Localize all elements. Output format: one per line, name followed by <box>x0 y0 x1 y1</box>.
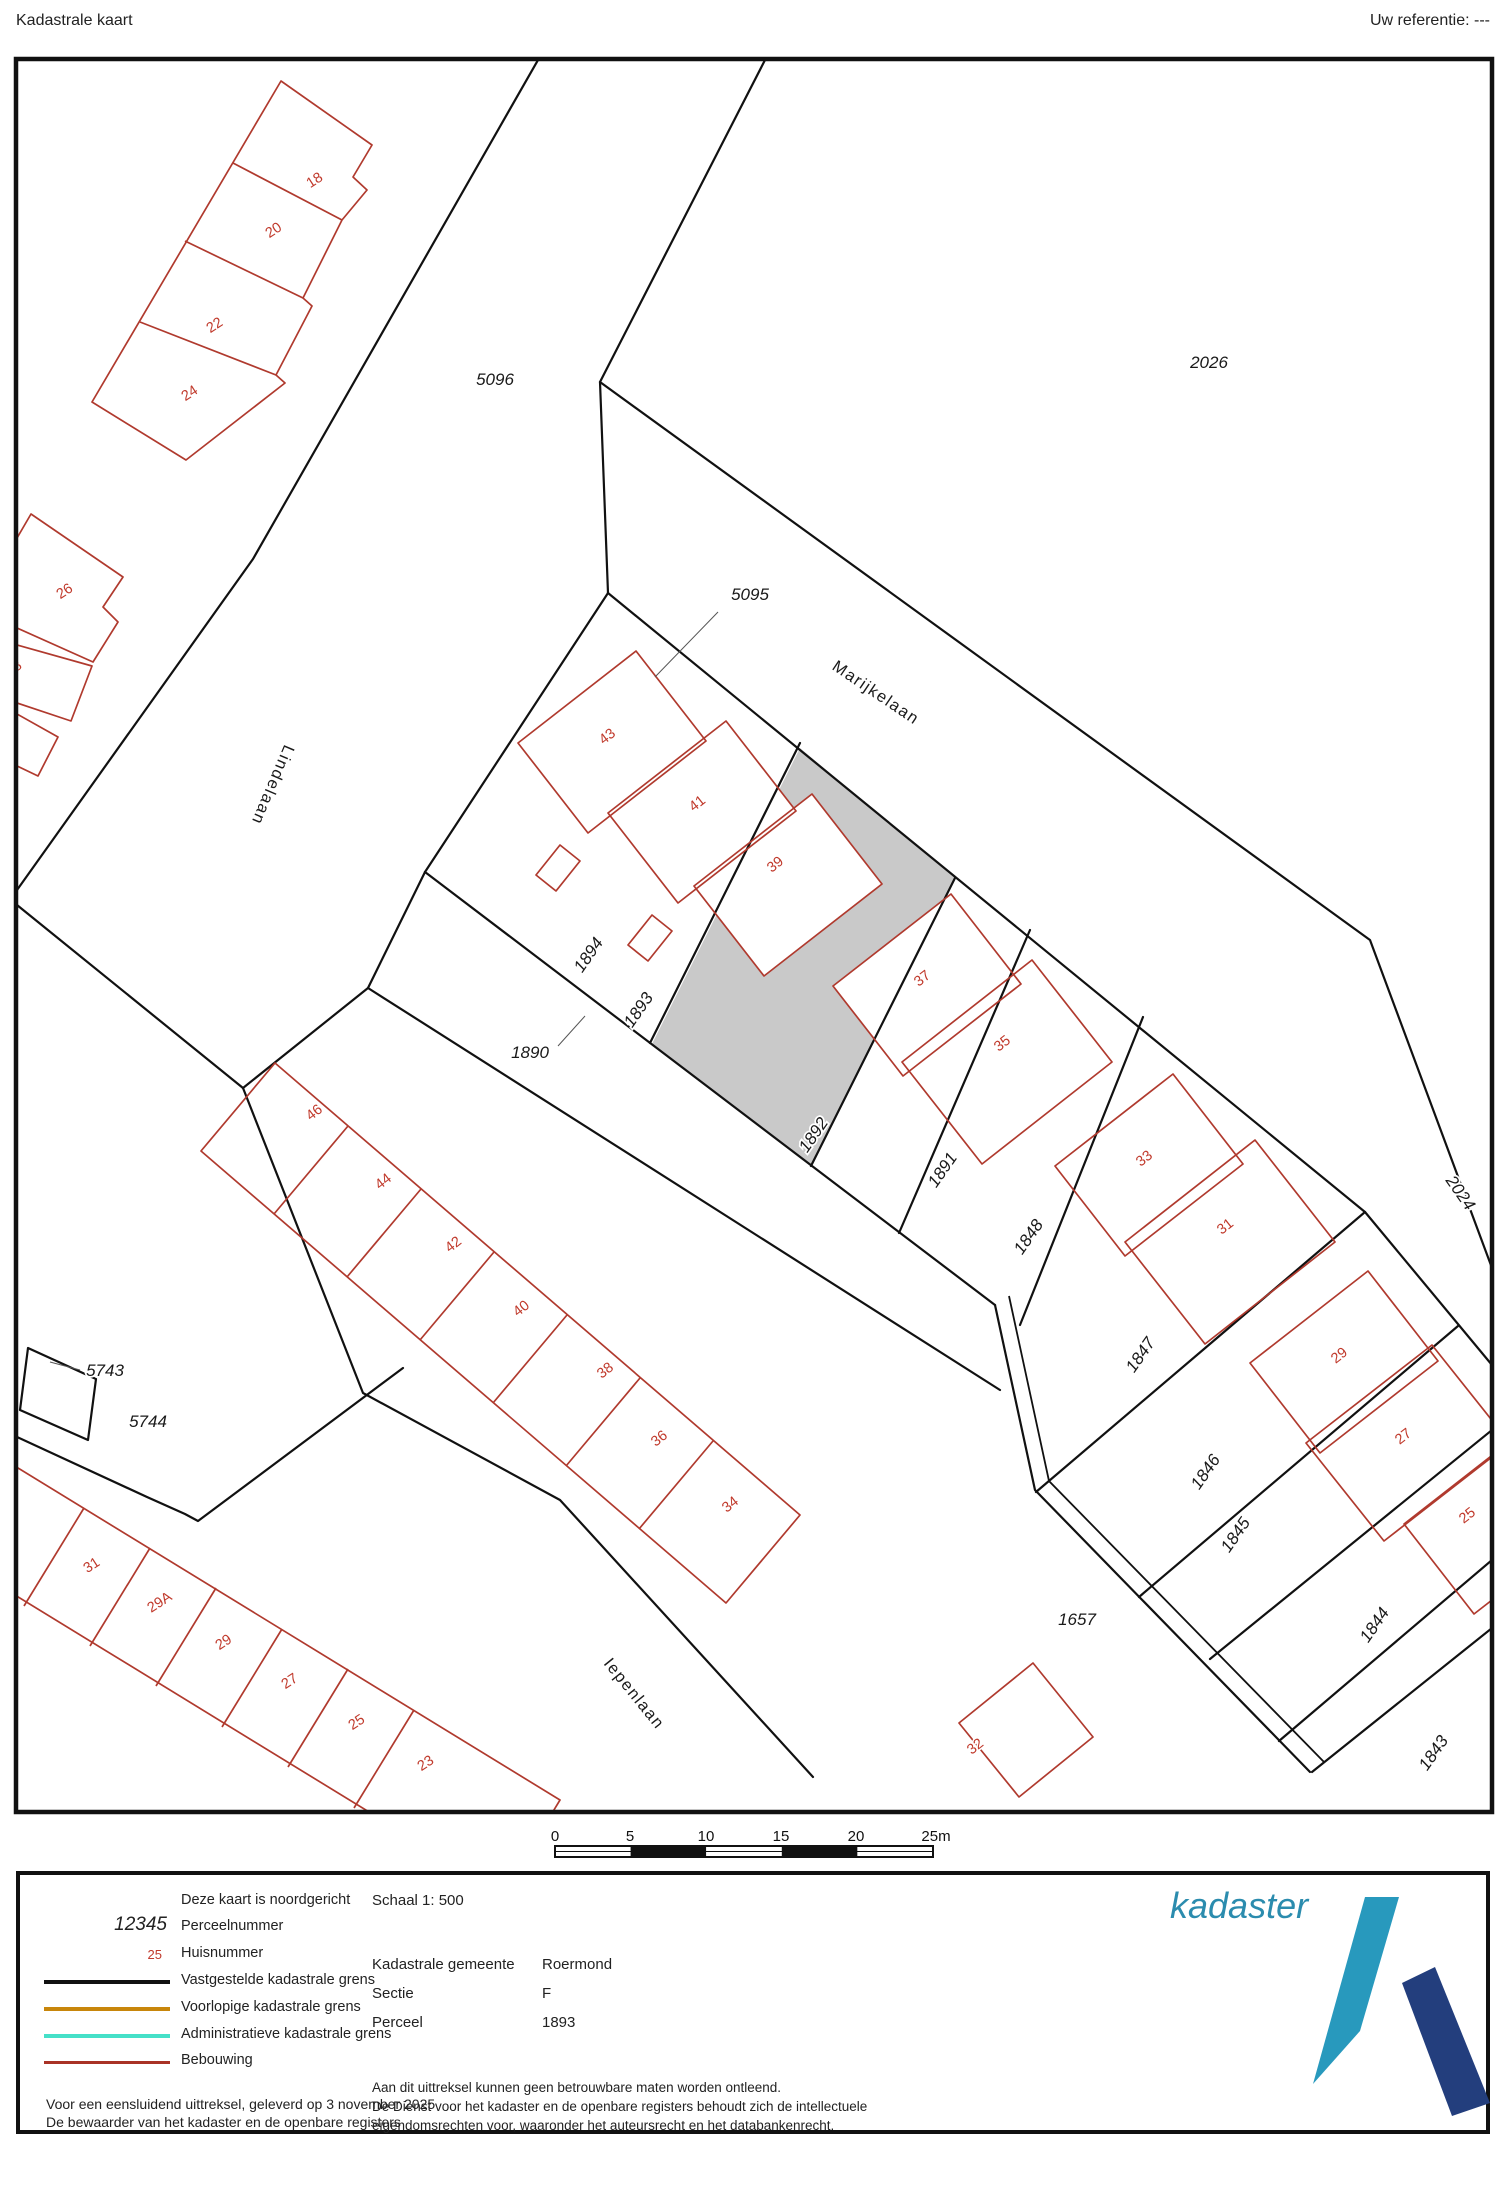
section-value: F <box>542 1985 551 2002</box>
boundary-road1890-branch <box>243 872 425 1088</box>
house-number-sample: 25 <box>60 1947 162 1962</box>
disclaimer-line1: Aan dit uittreksel kunnen geen betrouwba… <box>372 2078 867 2097</box>
legend-box: Deze kaart is noordgericht 12345 Perceel… <box>16 1871 1490 2134</box>
scalebar-ticks: 0510152025m <box>551 1828 951 1845</box>
administrative-boundary-label: Administratieve kadastrale grens <box>181 2026 391 2042</box>
parcel-number-1657: 1657 <box>1058 1610 1096 1629</box>
boundary-2026-west <box>600 60 765 593</box>
parcel-number-1845: 1845 <box>1217 1513 1255 1555</box>
boundary-lindelaan-foot <box>17 905 243 1088</box>
house-number-label: Huisnummer <box>181 1945 263 1961</box>
boundary-1844-1843 <box>1312 1628 1492 1772</box>
buildings-label: Bebouwing <box>181 2052 253 2068</box>
parcel-number-1894: 1894 <box>570 934 607 976</box>
disclaimer: Aan dit uittreksel kunnen geen betrouwba… <box>372 2078 867 2135</box>
keeper-line: De bewaarder van het kadaster en de open… <box>46 2114 401 2130</box>
parcel-number-5744: 5744 <box>129 1412 167 1431</box>
disclaimer-line2: De Dienst voor het kadaster en de openba… <box>372 2097 867 2116</box>
logo-beam-navy <box>1402 1967 1490 2116</box>
cadastral-extract-page: Kadastrale kaart Uw referentie: --- <box>0 0 1510 2195</box>
established-boundary-swatch <box>44 1980 170 1984</box>
municipality-label: Kadastrale gemeente <box>372 1956 515 1973</box>
buildings-swatch <box>44 2061 170 2064</box>
parcel-number-1843: 1843 <box>1415 1731 1453 1773</box>
parcel-number-2024: 2024 <box>1441 1171 1479 1214</box>
label-leader-line <box>558 1016 585 1046</box>
parcel-number-1891: 1891 <box>924 1149 961 1191</box>
parcel-number-5096: 5096 <box>476 370 514 389</box>
disclaimer-line3: eigendomsrechten voor, waaronder het aut… <box>372 2116 867 2135</box>
logo-blade-teal <box>1313 1897 1399 2084</box>
street-name-Lindelaan: Lindelaan <box>248 742 298 827</box>
section-label: Sectie <box>372 1985 414 2002</box>
scalebar: 0510152025m <box>551 1828 951 1857</box>
parcel-number-1848: 1848 <box>1010 1215 1048 1257</box>
label-leader-line <box>655 612 718 677</box>
label-leader-line <box>50 1362 80 1370</box>
parcel-number-1847: 1847 <box>1122 1333 1160 1375</box>
scalebar-tick-5: 5 <box>626 1828 634 1845</box>
provisional-boundary-label: Voorlopige kadastrale grens <box>181 1999 361 2015</box>
scalebar-tick-25m: 25m <box>921 1828 950 1845</box>
street-name-Iepenlaan: Iepenlaan <box>600 1655 668 1733</box>
parcel-number-1846: 1846 <box>1187 1450 1225 1492</box>
parcel-number-5743: 5743 <box>86 1361 124 1380</box>
scale-text: Schaal 1: 500 <box>372 1892 464 1909</box>
parcel-number-5095: 5095 <box>731 585 769 604</box>
municipality-value: Roermond <box>542 1956 612 1973</box>
parcel-label: Perceel <box>372 2014 423 2031</box>
parcel-number-1890: 1890 <box>511 1043 549 1062</box>
street-name-Marijkelaan: Marijkelaan <box>829 657 923 728</box>
parcel-number-label: Perceelnummer <box>181 1918 283 1934</box>
cadastral-map: 5096202650951894189318901892189118481847… <box>0 0 1510 1870</box>
parcel-number-2026: 2026 <box>1189 353 1228 372</box>
established-boundary-label: Vastgestelde kadastrale grens <box>181 1972 375 1988</box>
north-note: Deze kaart is noordgericht <box>181 1892 350 1908</box>
provisional-boundary-swatch <box>44 2007 170 2011</box>
parcel-number-1844: 1844 <box>1356 1604 1393 1646</box>
administrative-boundary-swatch <box>44 2034 170 2038</box>
scalebar-tick-20: 20 <box>848 1828 865 1845</box>
parcel-value: 1893 <box>542 2014 575 2031</box>
parcel-number-sample: 12345 <box>60 1914 167 1936</box>
parcel-5743-outline <box>20 1348 96 1440</box>
scalebar-tick-10: 10 <box>698 1828 715 1845</box>
kadaster-logo-icon <box>1275 1883 1500 2126</box>
parcel-number-1893: 1893 <box>620 988 658 1030</box>
boundary-iepenlaan-southwest <box>17 1368 403 1521</box>
scalebar-tick-15: 15 <box>773 1828 790 1845</box>
map-content: 5096202650951894189318901892189118481847… <box>0 60 1510 1870</box>
scalebar-tick-0: 0 <box>551 1828 559 1845</box>
